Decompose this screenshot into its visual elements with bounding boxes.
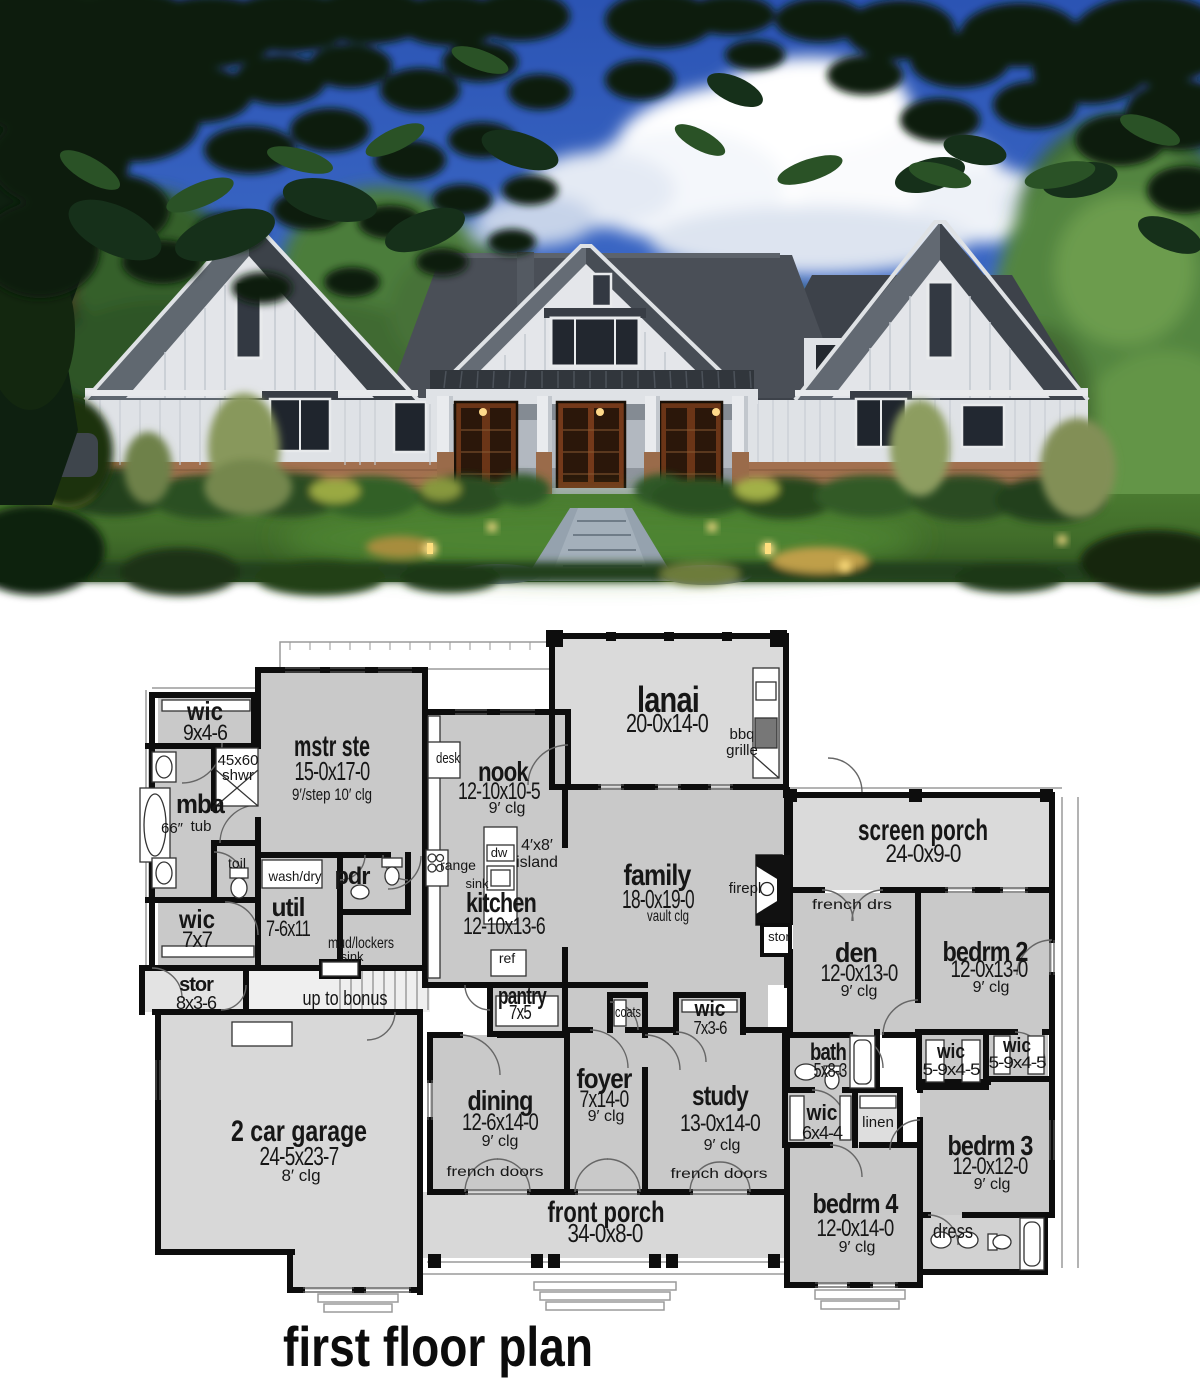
svg-text:7x5: 7x5 [509, 1002, 532, 1024]
svg-text:12-0x14-0: 12-0x14-0 [817, 1215, 895, 1242]
svg-text:vault clg: vault clg [647, 908, 689, 925]
svg-text:5-9x4-5: 5-9x4-5 [923, 1060, 981, 1079]
svg-text:9′ clg: 9′ clg [489, 800, 526, 817]
svg-text:first floor plan: first floor plan [283, 1315, 593, 1378]
svg-text:12-6x14-0: 12-6x14-0 [462, 1109, 538, 1136]
svg-text:tub: tub [191, 818, 212, 835]
svg-text:6x4-4: 6x4-4 [802, 1123, 843, 1143]
svg-text:desk: desk [436, 750, 460, 767]
svg-text:french doors: french doors [447, 1163, 544, 1179]
svg-text:9x4-6: 9x4-6 [183, 720, 228, 745]
svg-text:pdr: pdr [335, 863, 371, 890]
svg-text:9′ clg: 9′ clg [841, 983, 878, 1000]
svg-text:34-0x8-0: 34-0x8-0 [568, 1218, 643, 1248]
svg-text:dress: dress [933, 1221, 973, 1243]
svg-text:wic: wic [806, 1100, 838, 1125]
svg-text:9′ clg: 9′ clg [839, 1239, 876, 1256]
svg-text:8′ clg: 8′ clg [281, 1166, 320, 1185]
svg-text:15-0x17-0: 15-0x17-0 [295, 756, 370, 786]
svg-text:9′/step 10′ clg: 9′/step 10′ clg [292, 785, 372, 804]
svg-text:ref: ref [499, 950, 515, 966]
svg-text:shwr: shwr [222, 767, 254, 784]
svg-text:7-6x11: 7-6x11 [266, 916, 311, 941]
svg-text:9′ clg: 9′ clg [704, 1137, 741, 1154]
svg-text:9′ clg: 9′ clg [974, 1176, 1011, 1193]
svg-text:toil: toil [228, 855, 246, 871]
svg-text:24-0x9-0: 24-0x9-0 [886, 840, 961, 868]
svg-text:bbq: bbq [729, 726, 754, 743]
svg-text:sink: sink [340, 949, 364, 964]
svg-text:66″: 66″ [161, 820, 184, 837]
svg-text:wash/dry: wash/dry [268, 868, 322, 884]
svg-text:20-0x14-0: 20-0x14-0 [626, 708, 708, 738]
svg-text:study: study [692, 1080, 749, 1111]
svg-text:9′ clg: 9′ clg [588, 1108, 625, 1125]
svg-text:firepl: firepl [729, 880, 762, 897]
svg-text:4′x8′: 4′x8′ [521, 837, 553, 854]
svg-text:french drs: french drs [812, 896, 892, 912]
svg-text:5-9x4-5: 5-9x4-5 [989, 1053, 1047, 1072]
svg-text:8x3-6: 8x3-6 [176, 993, 217, 1013]
svg-text:13-0x14-0: 13-0x14-0 [680, 1110, 761, 1137]
svg-text:linen: linen [862, 1114, 894, 1131]
svg-text:5x8-3: 5x8-3 [814, 1060, 848, 1082]
svg-text:dw: dw [491, 845, 508, 860]
svg-text:range: range [440, 857, 476, 873]
svg-text:french doors: french doors [671, 1165, 768, 1181]
svg-text:7x3-6: 7x3-6 [694, 1018, 728, 1038]
svg-text:9′ clg: 9′ clg [482, 1133, 519, 1150]
svg-text:coats: coats [615, 1004, 641, 1021]
svg-text:up to bonus: up to bonus [303, 988, 388, 1010]
svg-text:grille: grille [726, 742, 758, 759]
svg-text:island: island [516, 854, 558, 871]
svg-text:stor: stor [768, 929, 790, 944]
svg-text:9′ clg: 9′ clg [973, 979, 1010, 996]
svg-text:mba: mba [176, 789, 226, 819]
svg-text:12-10x13-6: 12-10x13-6 [463, 913, 545, 940]
svg-text:7x7: 7x7 [182, 927, 213, 952]
